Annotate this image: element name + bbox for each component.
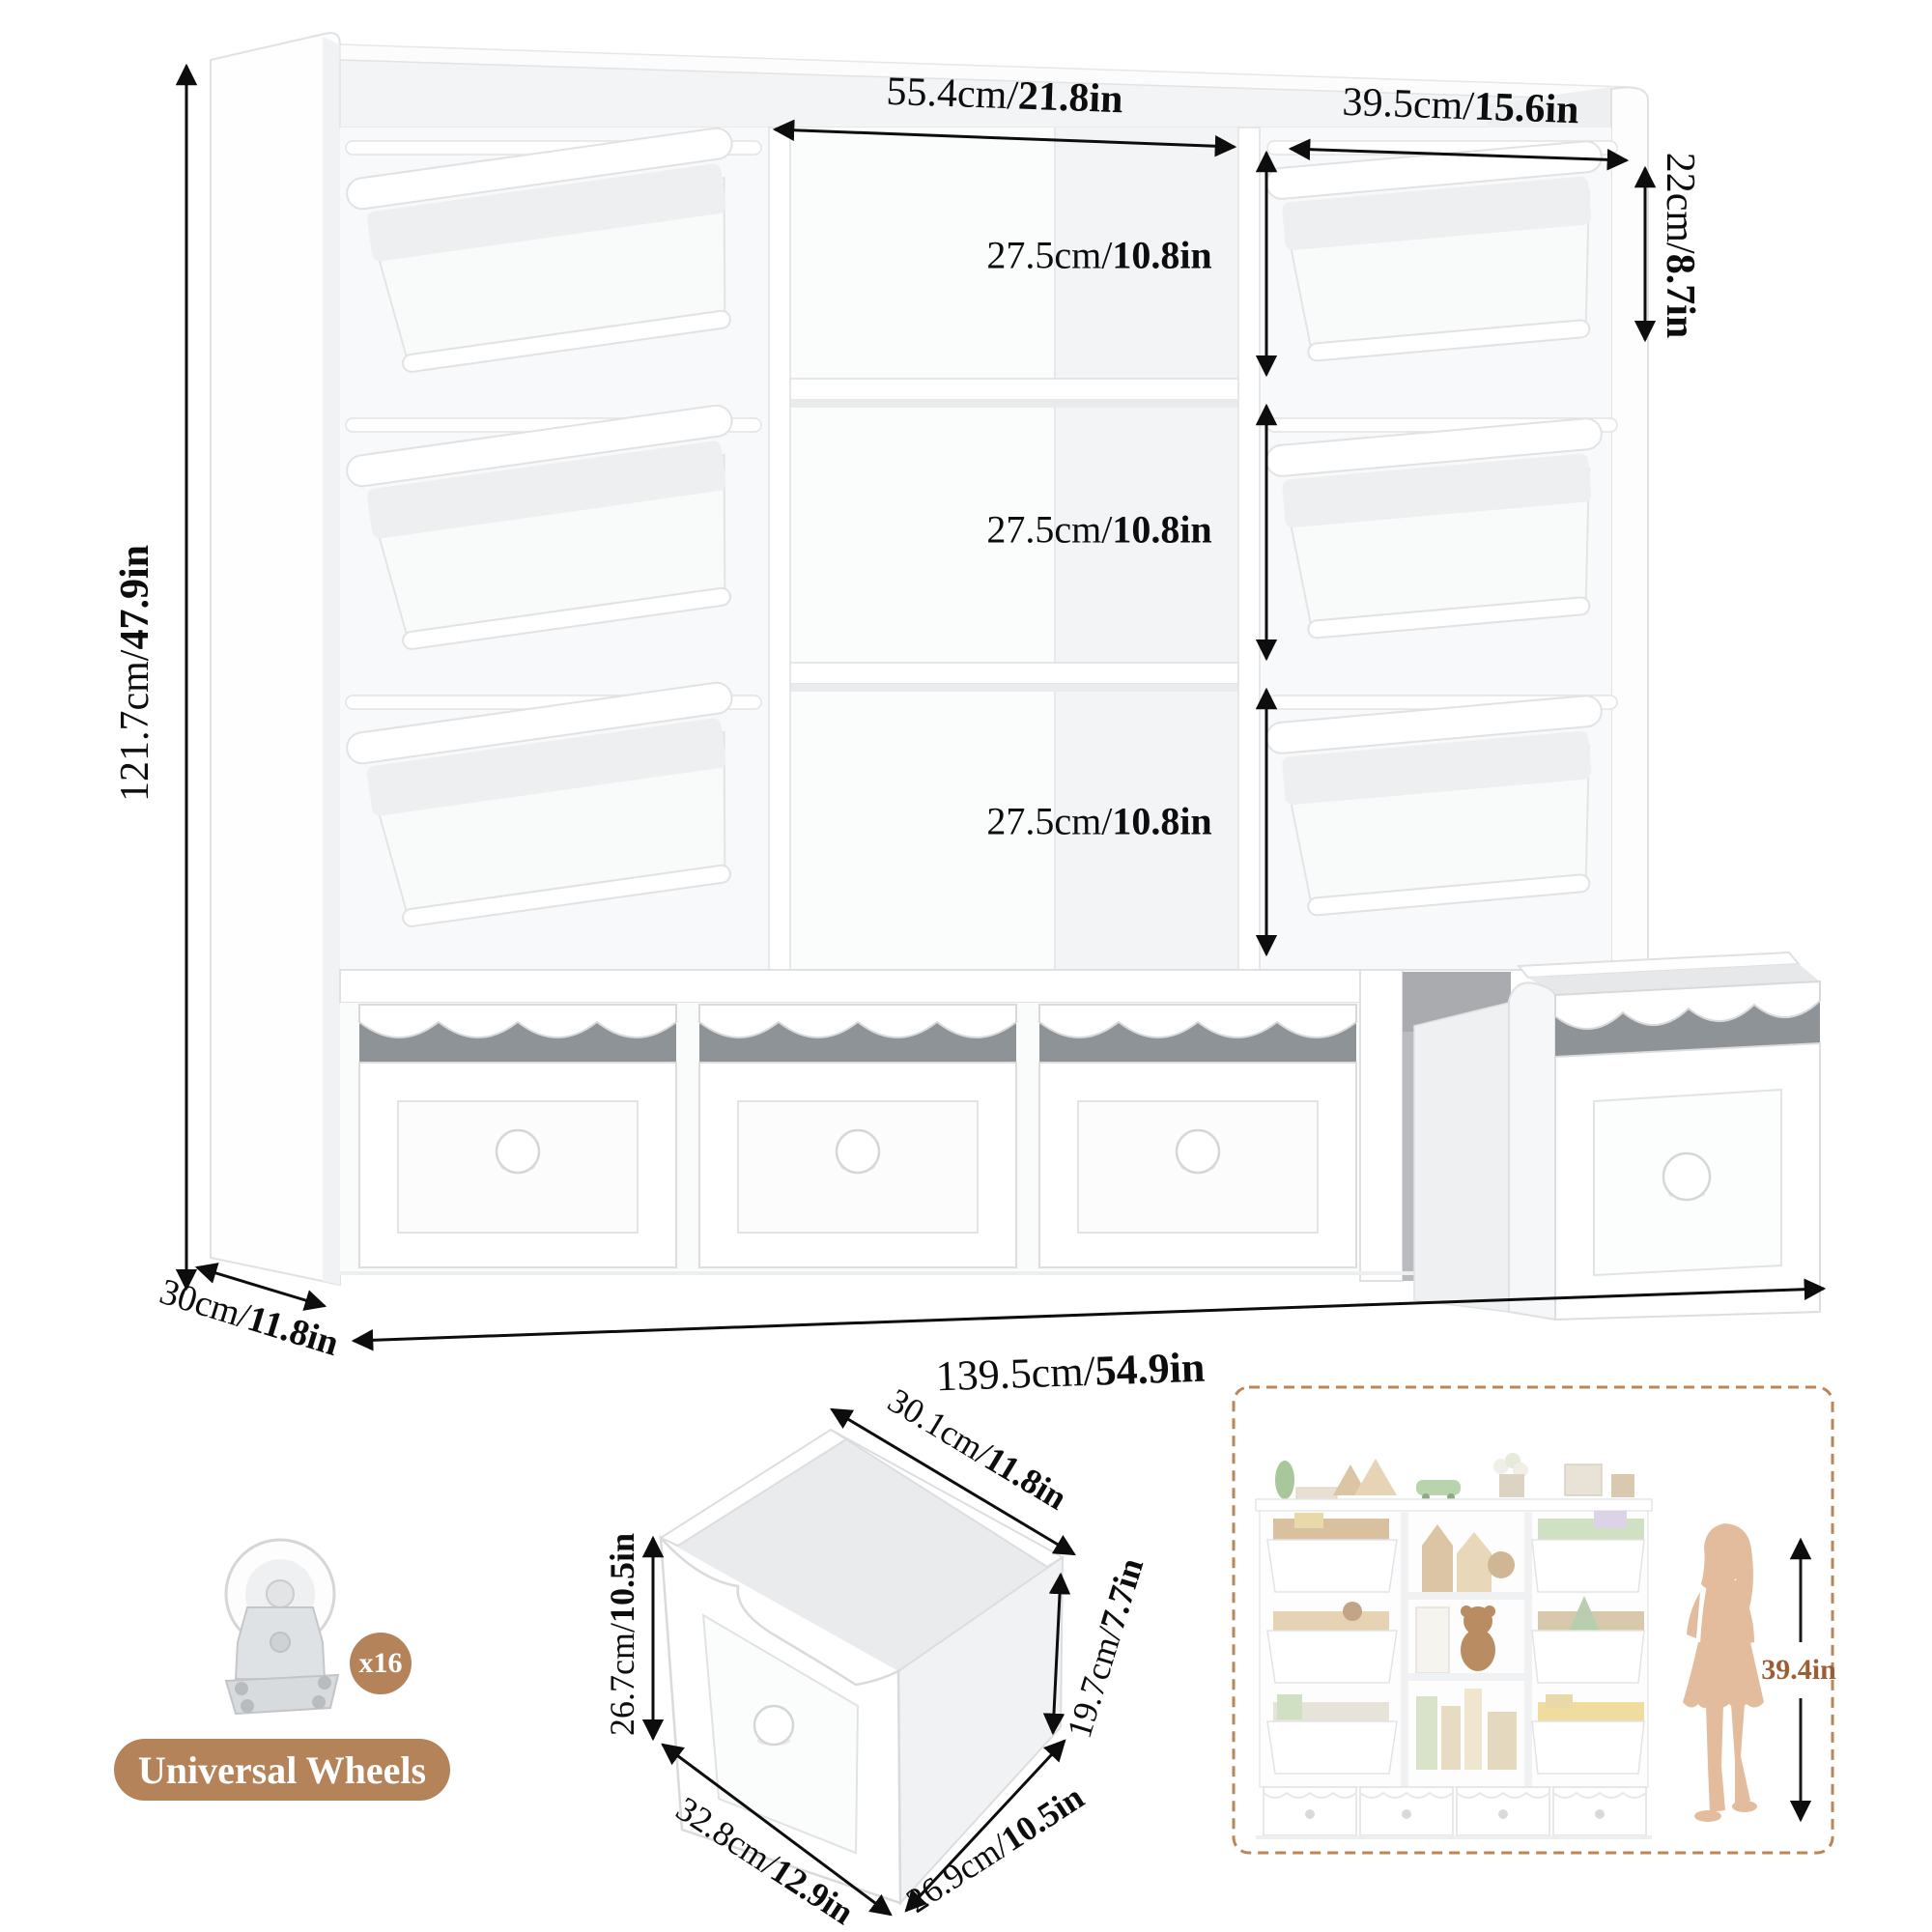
drawer-knob — [754, 1706, 793, 1745]
product-dimension-diagram: 121.7cm/47.9in 55.4cm/21.8in 39.5cm/15.6… — [0, 0, 1932, 1932]
dim-shelf-section-2: 27.5cm/10.8in — [986, 507, 1211, 553]
drawer-knob — [497, 1130, 539, 1173]
scale-reference-thumbnail — [1234, 1387, 1833, 1853]
universal-wheels-label: Universal Wheels — [114, 1739, 450, 1801]
mini-drawer-row — [1264, 1787, 1646, 1835]
dim-shelf-section-3: 27.5cm/10.8in — [986, 799, 1211, 844]
drawer — [1039, 1005, 1356, 1267]
dim-shelf-section-1: 27.5cm/10.8in — [986, 233, 1211, 278]
drawer — [359, 1005, 676, 1267]
child-silhouette — [1683, 1523, 1764, 1822]
mini-right-bins — [1532, 1511, 1644, 1774]
dim-drawer-front-height: 26.7cm/10.5in — [602, 1533, 642, 1736]
bin-row — [1265, 695, 1617, 919]
diagram-illustration — [0, 0, 1932, 1932]
bay-divider — [1360, 970, 1403, 1281]
drawer — [699, 1005, 1016, 1267]
drawer-knob — [837, 1130, 879, 1173]
child-height-label: 39.4in — [1761, 1654, 1836, 1687]
left-bin-column — [345, 127, 761, 932]
wheel-count-badge: x16 — [350, 1633, 412, 1694]
mini-unit-photo — [1256, 1453, 1652, 1839]
caster-wheel-illustration — [226, 1540, 338, 1714]
dim-overall-height: 121.7cm/47.9in — [112, 545, 158, 802]
shelf-board — [790, 663, 1238, 684]
drawer-knob — [1177, 1130, 1219, 1173]
bin-row — [1265, 140, 1617, 364]
shelf-board — [790, 379, 1238, 400]
drawer-knob — [1663, 1153, 1710, 1200]
bin-row — [1265, 417, 1617, 641]
left-side-panel — [211, 33, 340, 1285]
dim-top-middle-width: 55.4cm/21.8in — [886, 69, 1124, 124]
main-unit — [211, 33, 1820, 1320]
dim-bin-section-height: 22cm/8.7in — [1657, 153, 1703, 339]
dim-top-right-width: 39.5cm/15.6in — [1342, 79, 1580, 134]
mini-left-bins — [1267, 1513, 1397, 1774]
dim-overall-width: 139.5cm/54.9in — [935, 1343, 1206, 1402]
right-bin-column — [1265, 140, 1617, 919]
